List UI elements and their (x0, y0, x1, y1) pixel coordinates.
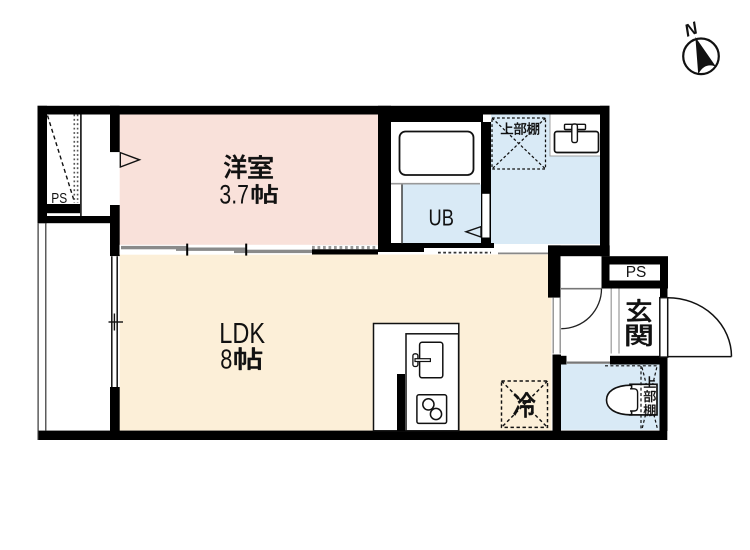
svg-text:PS: PS (626, 264, 647, 281)
svg-text:PS: PS (51, 190, 67, 207)
svg-text:3.7: 3.7 (219, 180, 249, 210)
svg-text:8: 8 (220, 343, 232, 374)
svg-text:UB: UB (429, 205, 454, 231)
